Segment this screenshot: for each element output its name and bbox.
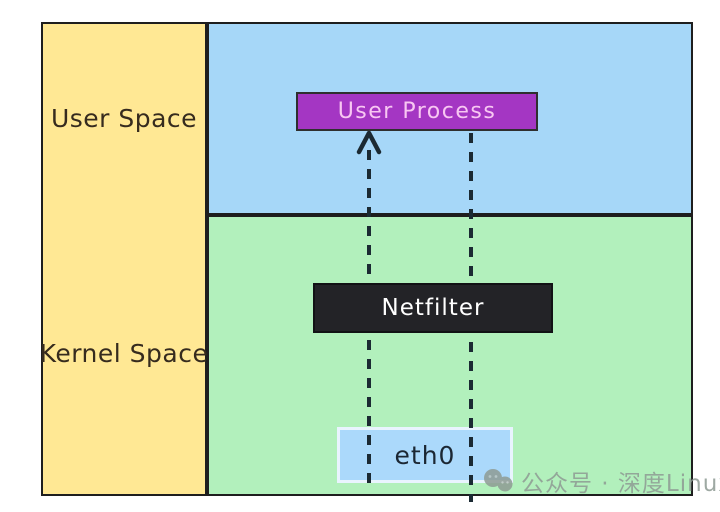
- wechat-icon: [482, 467, 514, 495]
- kernel-space-label: Kernel Space: [41, 333, 207, 373]
- watermark-text: 公众号 · 深度Linux: [521, 464, 720, 498]
- user-space-label: User Space: [41, 98, 207, 138]
- space-labels-column: [41, 22, 207, 496]
- watermark: 公众号 · 深度Linux: [482, 464, 720, 498]
- netfilter-node: Netfilter: [313, 283, 553, 333]
- arrow-up-icon: [355, 127, 385, 157]
- user-process-node: User Process: [296, 92, 538, 131]
- diagram-canvas: User Space Kernel Space eth0 Netfilter U…: [0, 0, 720, 512]
